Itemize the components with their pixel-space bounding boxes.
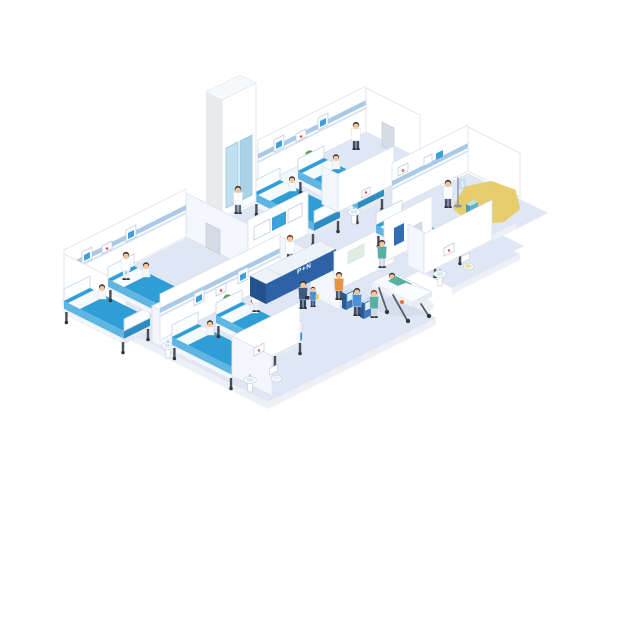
hospital-isometric-floor-illustration: P+N [0,0,640,640]
elevator [206,75,256,218]
child-backpack [316,294,319,299]
gurney-emblem [400,300,404,304]
elevator-shaft-side [206,92,222,218]
canvas: P+N [0,0,640,640]
elevator-door[interactable] [240,135,252,201]
navy-staff-bag [305,296,310,300]
self-service-kiosk[interactable] [342,288,354,310]
